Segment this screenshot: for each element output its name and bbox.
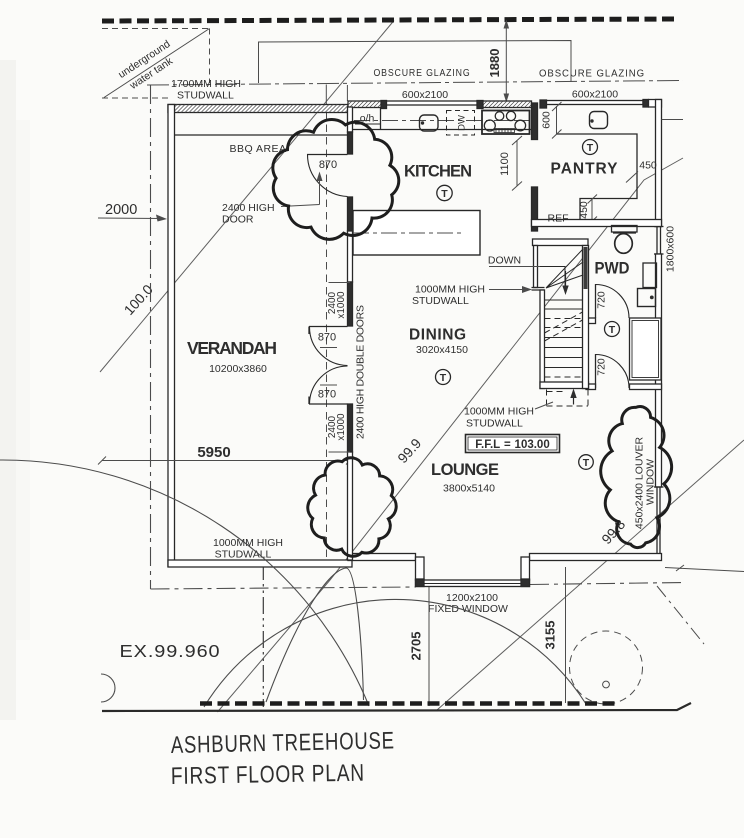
svg-text:DOOR: DOOR bbox=[222, 214, 254, 226]
svg-text:x1000: x1000 bbox=[336, 291, 347, 319]
svg-text:2400 HIGH DOUBLE DOORS: 2400 HIGH DOUBLE DOORS bbox=[355, 305, 367, 439]
svg-text:REF: REF bbox=[548, 213, 569, 225]
svg-text:2705: 2705 bbox=[409, 632, 424, 661]
svg-text:KITCHEN: KITCHEN bbox=[404, 163, 472, 181]
svg-text:1880: 1880 bbox=[487, 49, 502, 78]
svg-text:720: 720 bbox=[596, 291, 608, 309]
svg-text:870: 870 bbox=[318, 332, 336, 344]
svg-text:3800x5140: 3800x5140 bbox=[443, 483, 495, 495]
svg-text:5950: 5950 bbox=[197, 444, 230, 461]
svg-text:10200x3860: 10200x3860 bbox=[209, 363, 267, 375]
svg-text:3020x4150: 3020x4150 bbox=[416, 344, 468, 356]
svg-text:STUDWALL: STUDWALL bbox=[412, 295, 469, 307]
svg-text:870: 870 bbox=[319, 159, 337, 171]
svg-text:F.F.L = 103.00: F.F.L = 103.00 bbox=[475, 439, 549, 451]
svg-text:T: T bbox=[587, 142, 594, 154]
svg-text:720: 720 bbox=[596, 358, 608, 376]
svg-text:T: T bbox=[440, 372, 447, 384]
svg-text:450: 450 bbox=[578, 201, 590, 219]
svg-text:PANTRY: PANTRY bbox=[551, 161, 619, 178]
svg-text:OBSCURE GLAZING: OBSCURE GLAZING bbox=[374, 67, 471, 79]
svg-text:600: 600 bbox=[541, 111, 553, 129]
svg-text:1800x600: 1800x600 bbox=[665, 226, 677, 272]
svg-text:STUDWALL: STUDWALL bbox=[215, 549, 272, 561]
svg-text:DINING: DINING bbox=[409, 327, 466, 344]
svg-text:450: 450 bbox=[639, 160, 657, 172]
svg-text:T: T bbox=[609, 324, 616, 336]
svg-text:WINDOW: WINDOW bbox=[645, 459, 657, 505]
svg-text:DOWN: DOWN bbox=[488, 255, 521, 267]
svg-text:STUDWALL: STUDWALL bbox=[466, 418, 523, 430]
svg-text:PWD: PWD bbox=[595, 260, 630, 278]
svg-text:LOUNGE: LOUNGE bbox=[431, 461, 499, 479]
svg-text:VERANDAH: VERANDAH bbox=[187, 338, 277, 358]
svg-text:FIRST FLOOR PLAN: FIRST FLOOR PLAN bbox=[171, 760, 365, 790]
svg-text:2400 HIGH: 2400 HIGH bbox=[222, 202, 275, 214]
svg-text:3155: 3155 bbox=[543, 621, 558, 650]
svg-text:x1000: x1000 bbox=[336, 413, 347, 441]
svg-text:T: T bbox=[441, 188, 448, 200]
svg-text:1000MM HIGH: 1000MM HIGH bbox=[464, 406, 534, 418]
svg-text:1100: 1100 bbox=[499, 152, 511, 176]
svg-text:1700MM HIGH: 1700MM HIGH bbox=[171, 78, 241, 90]
svg-text:EX.99.960: EX.99.960 bbox=[120, 641, 221, 661]
svg-text:ASHBURN TREEHOUSE: ASHBURN TREEHOUSE bbox=[171, 727, 396, 759]
svg-text:870: 870 bbox=[318, 389, 336, 401]
svg-text:OBSCURE GLAZING: OBSCURE GLAZING bbox=[539, 68, 645, 80]
svg-text:DW: DW bbox=[457, 115, 468, 131]
svg-text:FIXED WINDOW: FIXED WINDOW bbox=[428, 603, 508, 615]
svg-text:1000MM HIGH: 1000MM HIGH bbox=[213, 537, 283, 549]
svg-text:600x2100: 600x2100 bbox=[402, 89, 448, 101]
svg-text:1000MM HIGH: 1000MM HIGH bbox=[415, 284, 485, 296]
svg-text:600x2100: 600x2100 bbox=[572, 89, 618, 101]
svg-text:STUDWALL: STUDWALL bbox=[177, 90, 234, 102]
svg-text:T: T bbox=[583, 457, 590, 469]
svg-text:2000: 2000 bbox=[105, 202, 137, 218]
